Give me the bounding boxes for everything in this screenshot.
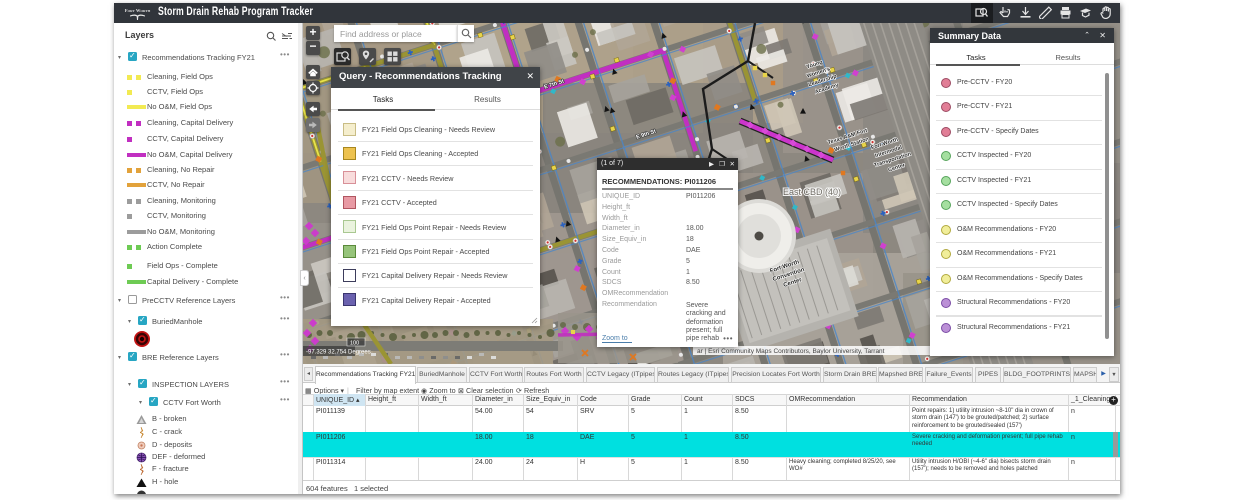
svg-text:100: 100 <box>350 341 359 347</box>
svg-text:ar | Esri Community Maps Contr: ar | Esri Community Maps Contributors, B… <box>697 348 885 355</box>
svg-text:East CBD (40): East CBD (40) <box>783 187 841 197</box>
svg-text:FORT WORTH: FORT WORTH <box>125 8 151 13</box>
svg-text:-97.329 32.754 Degrees: -97.329 32.754 Degrees <box>306 350 371 356</box>
